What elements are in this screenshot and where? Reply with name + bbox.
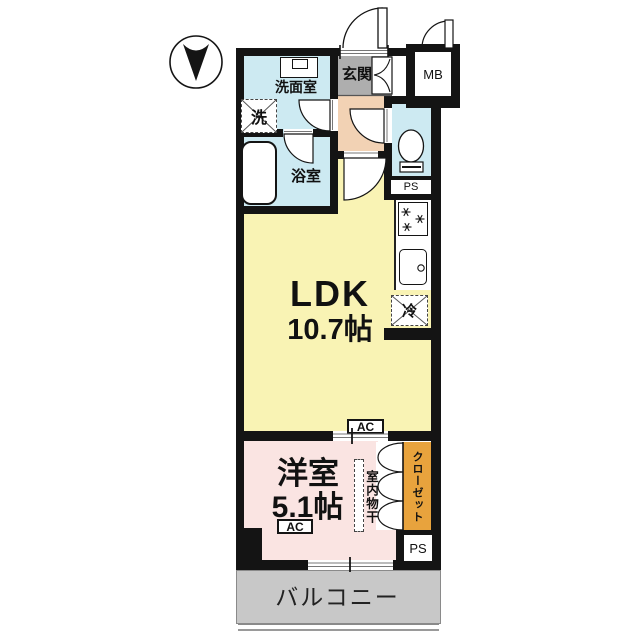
washroom-label: 洗面室 <box>262 79 330 95</box>
compass-north-arrow <box>170 36 222 88</box>
western-floor-patch <box>378 528 396 560</box>
floorplan: AC AC <box>0 0 640 640</box>
balcony-window <box>308 560 393 570</box>
entrance-door-sill <box>340 48 388 56</box>
western-size-label: 5.1帖 <box>255 488 360 519</box>
stove <box>398 202 428 236</box>
ldk-strip-floor <box>338 152 384 214</box>
wall-column-sw <box>236 528 262 568</box>
indoor-drying-label: 室内物干 <box>363 462 380 532</box>
wall-hall-stub-l <box>330 151 344 159</box>
balcony-label: バルコニー <box>256 582 419 608</box>
closet-label: クローゼット <box>404 445 430 529</box>
washer-label: 洗 <box>241 99 277 133</box>
kitchen-sink <box>399 249 427 285</box>
bathtub <box>241 141 277 205</box>
bath-door-gap <box>284 129 313 137</box>
wall-ldk-west-b <box>388 431 441 441</box>
wall-top-left <box>236 48 340 56</box>
entrance-label: 玄関 <box>334 64 380 82</box>
bathroom-label: 浴室 <box>282 166 330 184</box>
ps-lower-label: PS <box>404 535 432 561</box>
wall-wet-vert-b <box>330 131 338 214</box>
wall-bottom-b <box>393 560 441 570</box>
washroom-door-gap <box>330 99 338 131</box>
hall-ldk-sill <box>344 151 378 159</box>
wall-toilet-left-b <box>384 143 392 176</box>
ps-upper-label: PS <box>391 180 431 194</box>
wall-ldk-west-a <box>236 431 333 441</box>
ldk-size-label: 10.7帖 <box>260 311 400 343</box>
wall-bath-ldk <box>236 206 338 214</box>
meter-box-label: MB <box>414 51 452 97</box>
vanity-sink-bowl <box>292 59 308 69</box>
balcony-edge <box>238 624 439 631</box>
ac-ldk: AC <box>347 419 384 434</box>
toilet-floor <box>392 104 431 176</box>
toilet-door-gap <box>384 108 392 143</box>
hall-floor <box>338 95 384 152</box>
